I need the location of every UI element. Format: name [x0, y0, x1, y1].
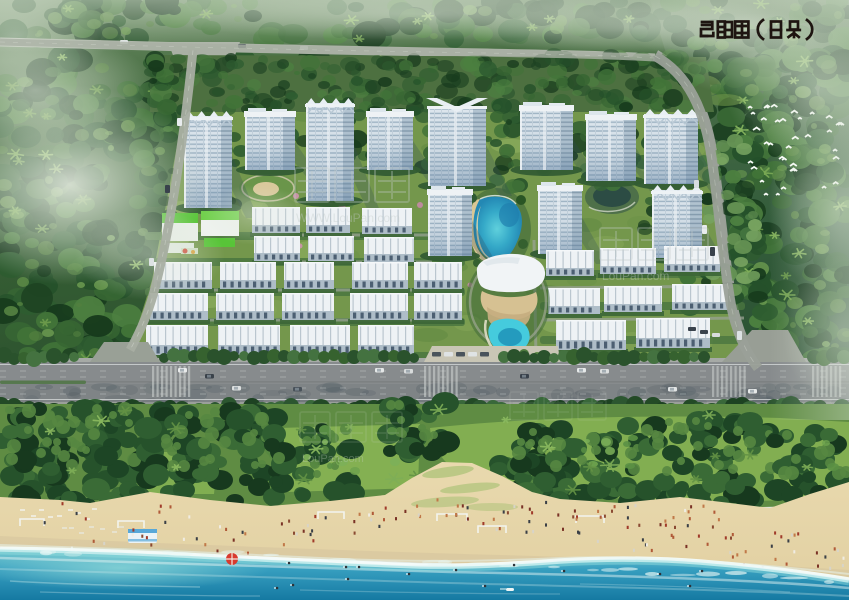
svg-text:LouPan.com: LouPan.com	[602, 269, 669, 283]
svg-text:LouPan.com: LouPan.com	[302, 453, 364, 465]
svg-text:WWW.LouPan.com: WWW.LouPan.com	[296, 211, 400, 225]
